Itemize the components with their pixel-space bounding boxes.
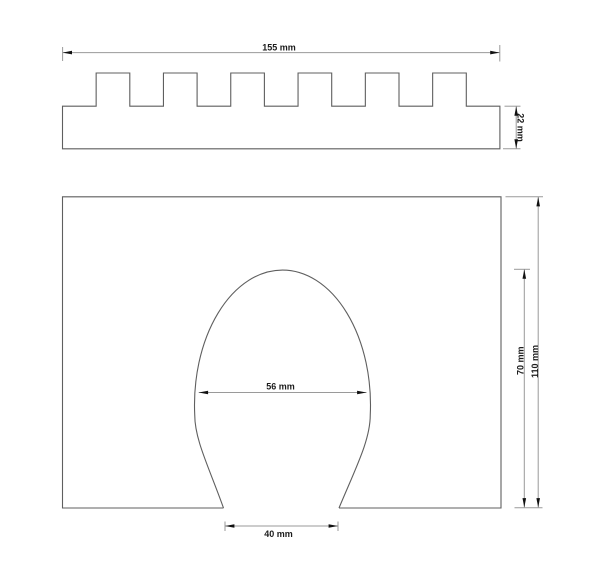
svg-text:56 mm: 56 mm: [266, 381, 295, 391]
svg-text:110 mm: 110 mm: [530, 345, 540, 378]
svg-text:70 mm: 70 mm: [515, 346, 525, 375]
svg-text:40 mm: 40 mm: [264, 529, 293, 539]
svg-text:22 mm: 22 mm: [515, 113, 525, 142]
svg-text:155 mm: 155 mm: [262, 43, 296, 53]
